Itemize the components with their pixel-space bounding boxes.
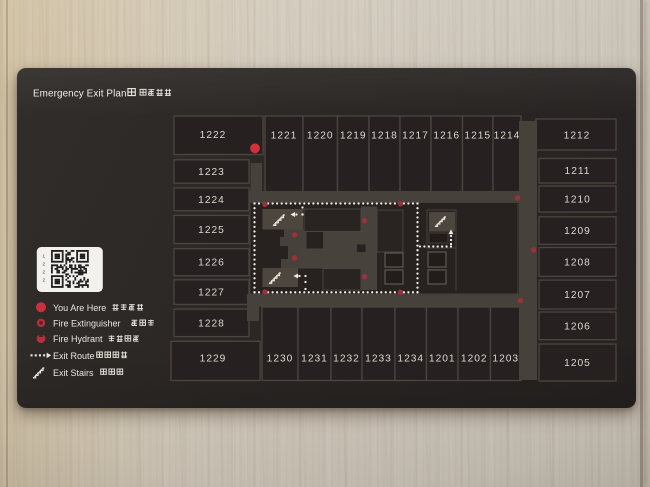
svg-text:1225: 1225	[198, 225, 225, 236]
svg-text:1230: 1230	[267, 354, 294, 365]
svg-text:Fire Extinguisher: Fire Extinguisher	[53, 318, 121, 328]
svg-text:1207: 1207	[564, 290, 591, 301]
svg-text:1233: 1233	[365, 354, 392, 365]
svg-text:Fire Hydrant: Fire Hydrant	[53, 334, 103, 344]
svg-text:1208: 1208	[564, 257, 591, 268]
svg-text:1212: 1212	[564, 131, 591, 142]
svg-text:1218: 1218	[371, 131, 398, 142]
svg-text:1203: 1203	[492, 354, 519, 365]
svg-text:2: 2	[43, 278, 46, 283]
svg-text:1221: 1221	[271, 131, 298, 142]
svg-text:You Are Here: You Are Here	[53, 303, 106, 313]
svg-text:Exit Route: Exit Route	[53, 351, 95, 361]
svg-text:1232: 1232	[333, 354, 360, 365]
svg-text:1224: 1224	[198, 195, 225, 206]
svg-text:1227: 1227	[198, 288, 225, 299]
svg-text:1228: 1228	[198, 318, 225, 329]
svg-text:1209: 1209	[564, 226, 591, 237]
svg-text:1205: 1205	[564, 358, 591, 369]
svg-text:1223: 1223	[198, 167, 225, 178]
svg-text:1202: 1202	[461, 354, 488, 365]
svg-text:1215: 1215	[464, 131, 491, 142]
svg-text:1217: 1217	[402, 131, 429, 142]
svg-text:1211: 1211	[565, 166, 591, 177]
svg-text:1: 1	[43, 254, 46, 259]
svg-text:1214: 1214	[494, 131, 521, 142]
svg-text:1201: 1201	[429, 354, 456, 365]
svg-text:1206: 1206	[564, 321, 591, 332]
svg-text:1234: 1234	[397, 354, 424, 365]
svg-text:1226: 1226	[198, 258, 225, 269]
svg-text:1216: 1216	[433, 131, 460, 142]
svg-text:1222: 1222	[200, 130, 227, 141]
svg-text:Emergency Exit Plan: Emergency Exit Plan	[33, 89, 127, 100]
svg-text:2: 2	[43, 270, 46, 275]
svg-text:2: 2	[43, 262, 46, 267]
svg-text:1210: 1210	[564, 195, 591, 206]
svg-text:1229: 1229	[200, 354, 227, 365]
svg-text:1231: 1231	[301, 354, 328, 365]
svg-text:Exit Stairs: Exit Stairs	[53, 368, 94, 378]
svg-text:1220: 1220	[307, 131, 334, 142]
svg-text:1219: 1219	[340, 131, 367, 142]
